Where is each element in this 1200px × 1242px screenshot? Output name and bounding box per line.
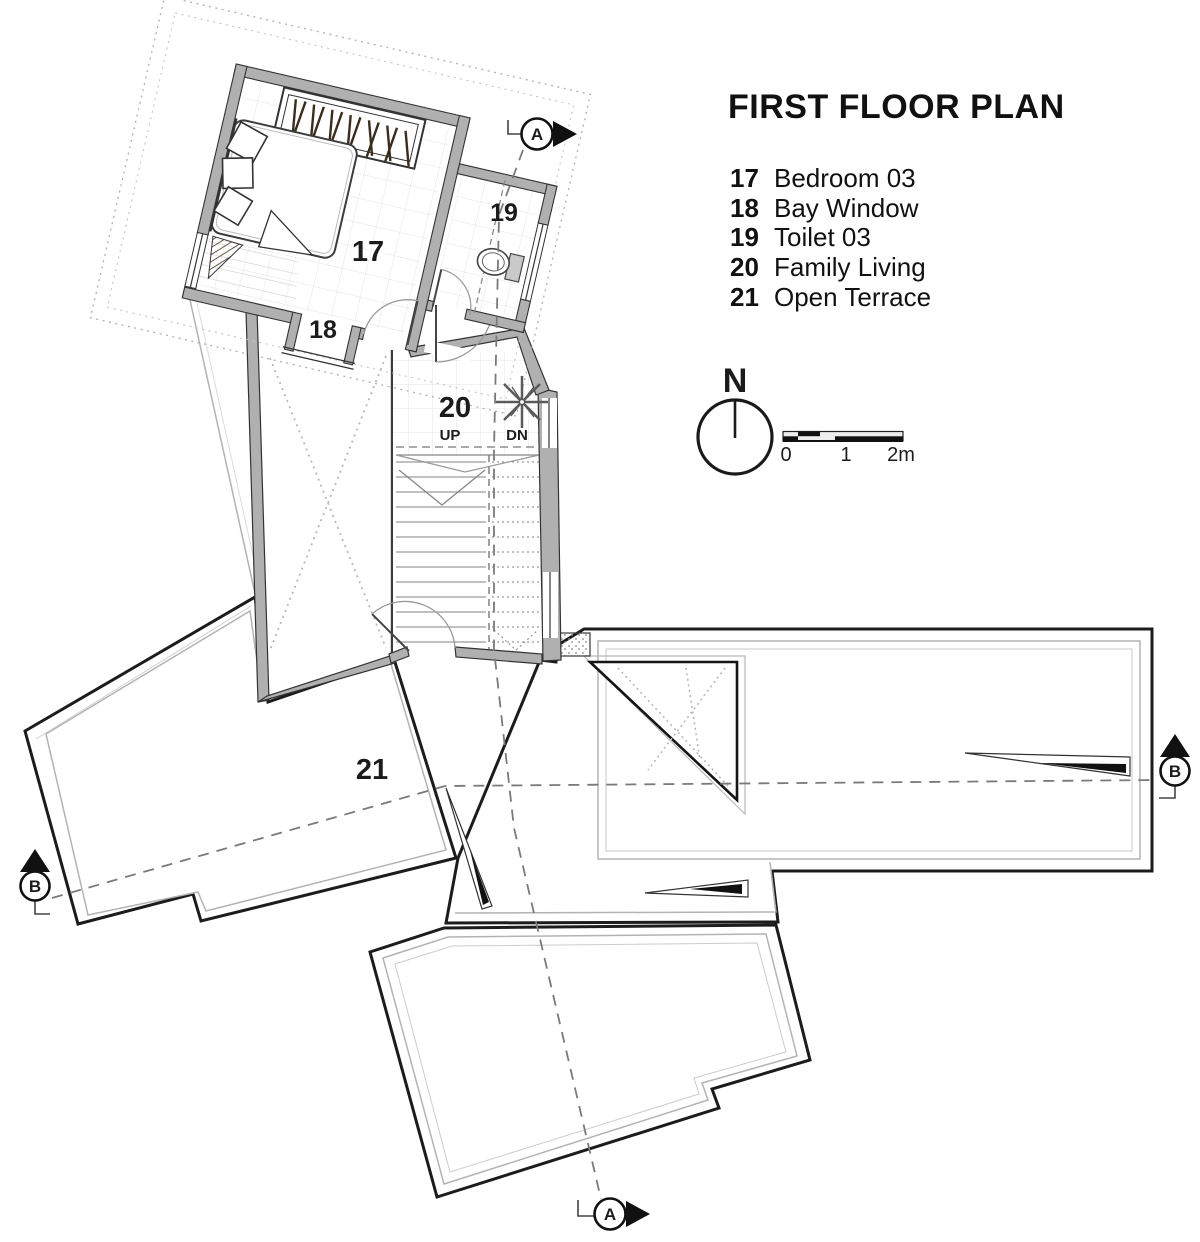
legend-number: 20 [730,252,774,283]
room-label-open-terrace: 21 [356,754,388,786]
legend-item-bedroom: 17 Bedroom 03 [730,164,931,194]
section-arrow-icon [553,121,577,147]
roof-edge-line [190,300,256,598]
legend-item-bay-window: 18 Bay Window [730,194,931,224]
legend-label: Bay Window [774,193,919,224]
section-label-a: A [604,1205,616,1224]
north-label: N [723,362,748,400]
section-label-a: A [531,125,543,144]
legend-label: Toilet 03 [774,222,871,253]
section-arrow-icon [626,1201,650,1227]
room-label-family-living: 20 [439,392,471,424]
stairs-up-label: UP [440,427,461,444]
section-label-b: B [1169,762,1181,781]
floor-plan-drawing: A A B B 17 18 19 20 21 UP DN N 0 1 2 [0,0,1200,1242]
section-label-b: B [29,877,41,896]
legend: 17 Bedroom 03 18 Bay Window 19 Toilet 03… [730,164,931,312]
scale-tick-0: 0 [780,444,791,466]
north-arrow-icon: N [698,362,772,474]
room-label-toilet: 19 [490,199,518,227]
section-marker-b-left: B [20,849,50,914]
living-right-wall [538,388,561,661]
section-arrow-icon [20,849,50,872]
floor-plan-sheet: A A B B 17 18 19 20 21 UP DN N 0 1 2 [0,0,1200,1242]
terrace-lower-deck [370,925,810,1197]
section-marker-a-top: A [508,119,577,150]
legend-number: 17 [730,163,774,194]
scale-bar: 0 1 2m [780,432,914,467]
page-title: FIRST FLOOR PLAN [728,88,1065,127]
legend-label: Open Terrace [774,282,931,313]
room-label-bedroom: 17 [352,236,384,268]
legend-number: 21 [730,282,774,313]
room-label-bay-window: 18 [309,316,337,344]
legend-label: Bedroom 03 [774,163,916,194]
scale-tick-2: 2m [887,444,915,466]
legend-number: 19 [730,222,774,253]
section-marker-a-bottom: A [578,1199,650,1230]
section-arrow-icon [1160,734,1190,757]
legend-number: 18 [730,193,774,224]
legend-item-open-terrace: 21 Open Terrace [730,282,931,312]
pillow [222,158,253,189]
legend-item-family-living: 20 Family Living [730,253,931,283]
void-block [246,309,395,702]
scale-tick-1: 1 [840,444,851,466]
stairs-down-label: DN [506,427,528,444]
open-terrace [25,597,1152,1197]
family-living-block [372,305,561,664]
section-marker-b-right: B [1159,734,1190,798]
terrace-right-wing [446,629,1152,923]
legend-item-toilet: 19 Toilet 03 [730,223,931,253]
legend-label: Family Living [774,252,926,283]
